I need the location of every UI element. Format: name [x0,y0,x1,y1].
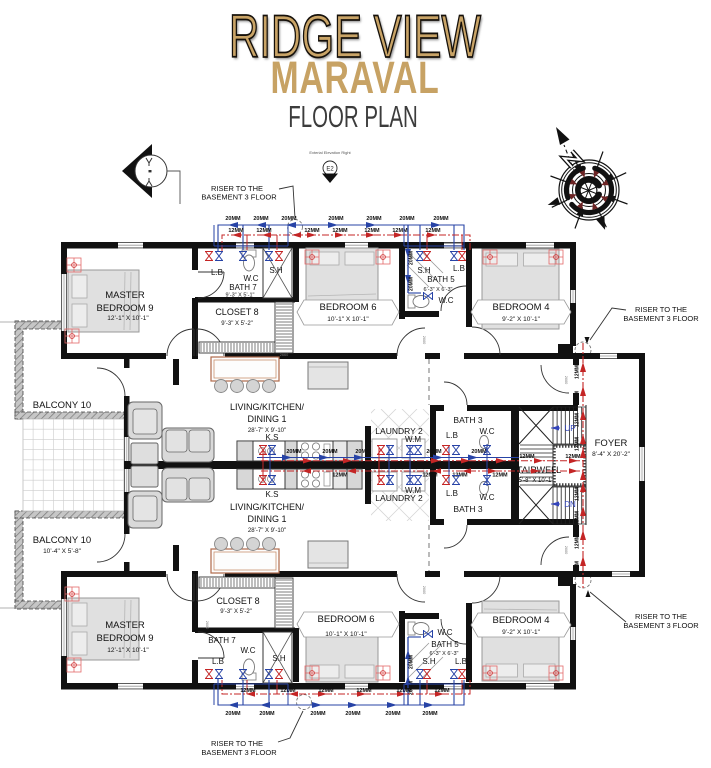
svg-text:W.C: W.C [438,296,453,305]
svg-text:9’-2" X 10’-1": 9’-2" X 10’-1" [502,629,541,636]
svg-text:12MM: 12MM [575,487,581,501]
svg-text:W.C: W.C [479,493,494,502]
svg-text:2660: 2660 [564,376,568,384]
svg-text:BEDROOM 6: BEDROOM 6 [317,614,374,625]
svg-text:RISER TO THE: RISER TO THE [211,739,263,748]
svg-text:LAUNDRY 2: LAUNDRY 2 [375,493,423,503]
svg-text:20MM: 20MM [225,711,241,717]
svg-text:BEDROOM 4: BEDROOM 4 [492,302,549,313]
svg-text:12MM: 12MM [575,437,581,451]
svg-text:K.S: K.S [266,433,279,442]
svg-text:10’-1" X 10’-1": 10’-1" X 10’-1" [327,316,369,323]
svg-text:12MM: 12MM [332,473,348,479]
svg-text:20MM: 20MM [409,655,415,669]
svg-text:12MM: 12MM [492,473,508,479]
svg-text:12’-1" X 10’-1": 12’-1" X 10’-1" [107,647,149,654]
svg-text:12MM: 12MM [392,228,408,234]
svg-text:BALCONY 10: BALCONY 10 [33,535,91,546]
svg-text:W.C: W.C [479,427,494,436]
svg-text:S.H: S.H [417,266,431,275]
svg-text:12MM: 12MM [575,413,581,427]
svg-text:2660: 2660 [564,546,568,554]
svg-text:12MM: 12MM [256,228,272,234]
svg-text:20MM: 20MM [385,711,401,717]
svg-text:20MM: 20MM [433,216,449,222]
svg-text:2660: 2660 [422,586,426,594]
svg-text:20MM: 20MM [225,216,241,222]
svg-text:12MM: 12MM [332,228,348,234]
svg-text:W.C: W.C [240,646,255,655]
svg-text:12MM: 12MM [240,688,256,694]
svg-text:W.M: W.M [405,435,421,444]
svg-text:MASTER: MASTER [105,620,145,631]
svg-text:20MM: 20MM [253,216,269,222]
svg-text:12MM: 12MM [304,228,320,234]
svg-text:L.B: L.B [455,657,467,666]
svg-text:BASEMENT 3 FLOOR: BASEMENT 3 FLOOR [623,314,699,323]
svg-text:FLOOR PLAN: FLOOR PLAN [288,99,418,134]
svg-text:20MM: 20MM [286,449,302,455]
svg-text:28’-7" X 9’-10": 28’-7" X 9’-10" [248,528,286,534]
svg-text:12MM: 12MM [364,228,380,234]
svg-text:12MM: 12MM [575,535,581,549]
svg-text:S.H: S.H [269,266,283,275]
svg-text:12MM: 12MM [519,454,535,460]
svg-text:9’-3" X 5’-2": 9’-3" X 5’-2" [220,609,252,615]
svg-text:20MM: 20MM [426,449,442,455]
svg-text:S.H: S.H [272,654,286,663]
svg-text:20MM: 20MM [409,277,415,291]
svg-text:LIVING/KITCHEN/: LIVING/KITCHEN/ [230,502,305,512]
svg-text:RISER TO THE: RISER TO THE [635,612,687,621]
svg-text:BATH 3: BATH 3 [453,504,482,514]
svg-text:BATH 5: BATH 5 [427,275,455,284]
svg-text:BATH 7: BATH 7 [208,636,236,645]
svg-text:20MM: 20MM [310,711,326,717]
svg-text:20MM: 20MM [322,449,338,455]
svg-text:W.C: W.C [243,274,258,283]
svg-text:10’-4" X 5’-8": 10’-4" X 5’-8" [43,548,82,555]
svg-text:BEDROOM 4: BEDROOM 4 [492,615,549,626]
svg-text:6’-3" X 6’-3": 6’-3" X 6’-3" [424,287,453,293]
svg-text:12MM: 12MM [575,365,581,379]
svg-text:9’-2" X 10’-1": 9’-2" X 10’-1" [502,316,541,323]
svg-text:L.B: L.B [211,268,223,277]
svg-text:9’-3" X 5’-1": 9’-3" X 5’-1" [226,293,255,299]
svg-text:L.B: L.B [446,489,458,498]
svg-text:BEDROOM 6: BEDROOM 6 [319,302,376,313]
svg-text:Exterial Elevation Right: Exterial Elevation Right [309,150,351,155]
svg-text:8’-4" X 20’-2": 8’-4" X 20’-2" [592,451,631,458]
svg-text:5’-8" X 10’-1": 5’-8" X 10’-1" [519,478,554,484]
svg-text:12MM: 12MM [422,473,438,479]
svg-text:E2: E2 [326,167,334,173]
svg-text:12MM: 12MM [356,688,372,694]
svg-text:BASEMENT 3 FLOOR: BASEMENT 3 FLOOR [623,621,699,630]
svg-text:DINING 1: DINING 1 [247,414,286,424]
svg-text:RISER TO THE: RISER TO THE [635,305,687,314]
svg-text:20MM: 20MM [345,711,361,717]
svg-text:LIVING/KITCHEN/: LIVING/KITCHEN/ [230,402,305,412]
svg-text:2660: 2660 [422,336,426,344]
svg-text:12MM: 12MM [575,391,581,405]
svg-text:20MM: 20MM [355,449,371,455]
svg-text:20MM: 20MM [399,216,415,222]
svg-text:BALCONY 10: BALCONY 10 [33,400,91,411]
svg-text:20MM: 20MM [409,251,415,265]
svg-text:S.H: S.H [422,657,436,666]
svg-text:BATH 3: BATH 3 [453,415,482,425]
svg-text:12MM: 12MM [228,228,244,234]
svg-text:DINING 1: DINING 1 [247,514,286,524]
svg-text:BASEMENT 3 FLOOR: BASEMENT 3 FLOOR [201,193,277,202]
svg-text:L.B: L.B [453,264,465,273]
svg-text:BEDROOM 9: BEDROOM 9 [96,303,153,314]
svg-text:12MM: 12MM [434,688,450,694]
svg-text:12MM: 12MM [575,511,581,525]
svg-text:W.C: W.C [437,628,452,637]
svg-text:20MM: 20MM [259,711,275,717]
svg-text:BATH 7: BATH 7 [229,283,257,292]
svg-text:BATH 5: BATH 5 [431,640,459,649]
svg-text:FOYER: FOYER [595,438,628,449]
svg-text:L.B: L.B [212,657,224,666]
svg-text:20MM: 20MM [366,216,382,222]
svg-text:K.S: K.S [266,490,279,499]
svg-text:2660: 2660 [280,353,288,357]
svg-text:9’-3" X 5’-2": 9’-3" X 5’-2" [221,321,253,327]
svg-text:12’-1" X 10’-1": 12’-1" X 10’-1" [107,315,149,322]
svg-text:CLOSET 8: CLOSET 8 [216,596,259,606]
svg-text:10’-1" X 10’-1": 10’-1" X 10’-1" [325,631,367,638]
svg-text:MASTER: MASTER [105,290,145,301]
svg-text:12MM: 12MM [565,454,581,460]
svg-text:BEDROOM 9: BEDROOM 9 [96,633,153,644]
svg-text:MARAVAL: MARAVAL [271,53,440,103]
svg-text:12MM: 12MM [425,228,441,234]
svg-text:BASEMENT 3 FLOOR: BASEMENT 3 FLOOR [201,748,277,757]
svg-text:20MM: 20MM [328,216,344,222]
svg-text:L.B: L.B [446,431,458,440]
svg-text:12MM: 12MM [318,688,334,694]
svg-text:20MM: 20MM [281,216,297,222]
svg-text:12MM: 12MM [575,561,581,575]
svg-text:CLOSET 8: CLOSET 8 [215,307,258,317]
svg-text:20MM: 20MM [422,711,438,717]
svg-text:2660: 2660 [205,621,209,629]
